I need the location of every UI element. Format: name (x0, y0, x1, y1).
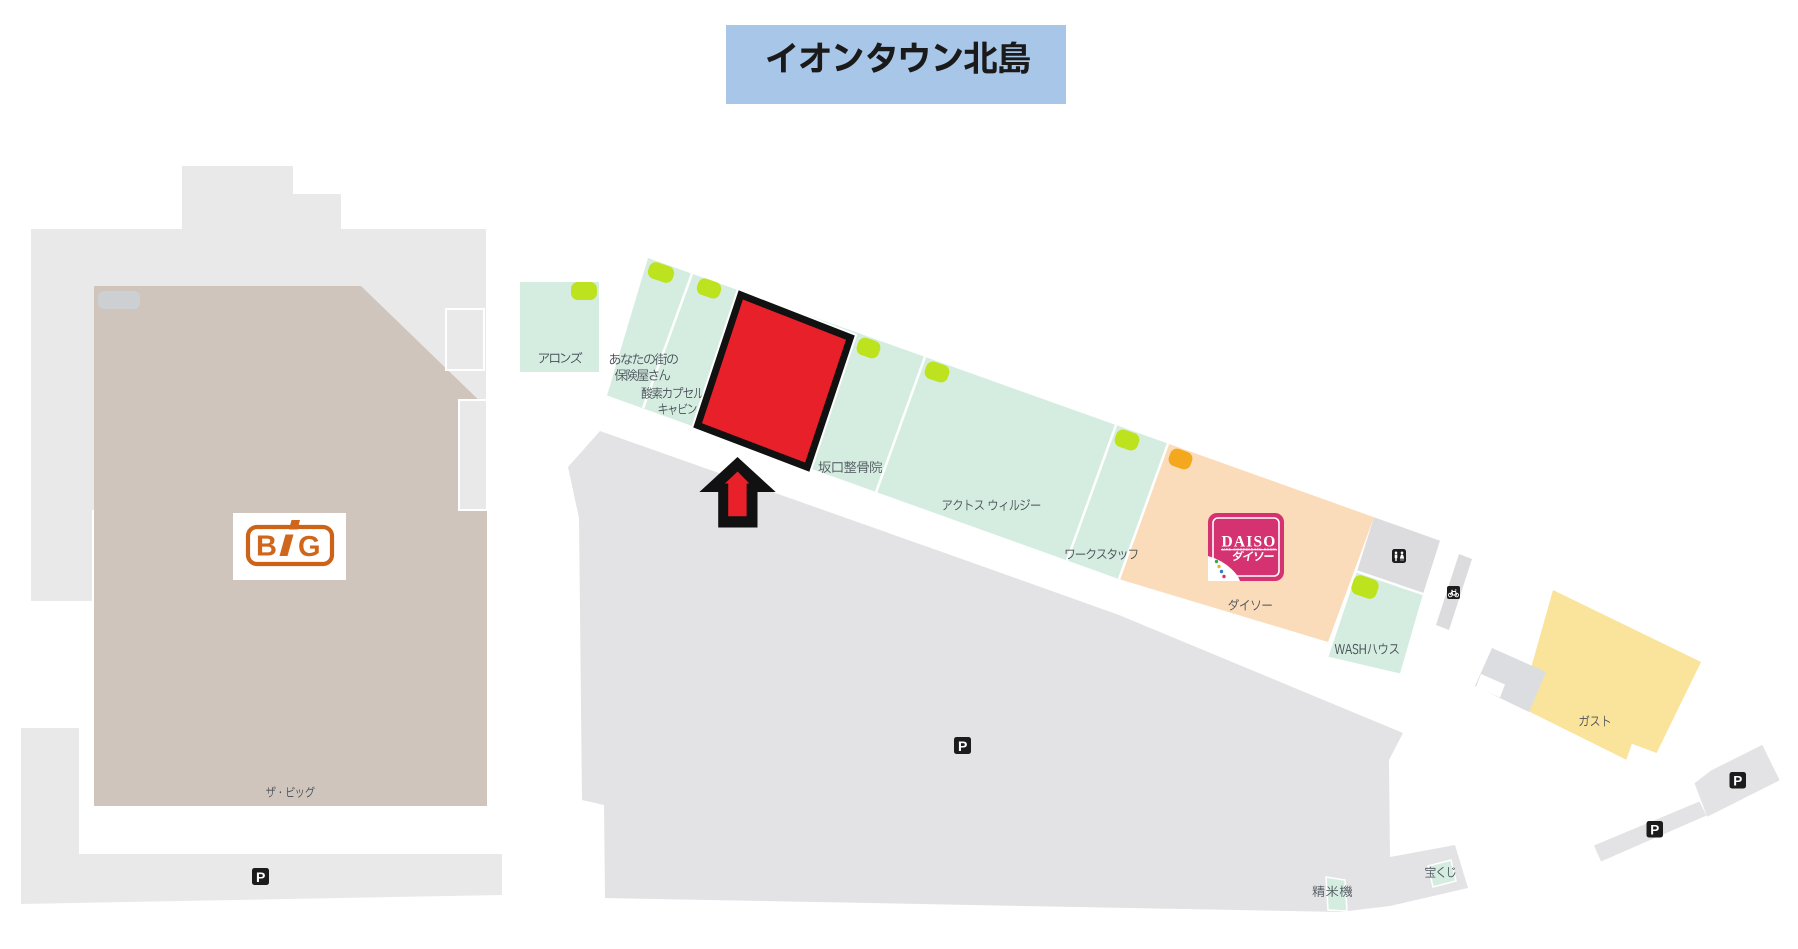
svg-text:P: P (1733, 774, 1742, 789)
svg-text:B: B (256, 531, 277, 563)
svg-text:P: P (958, 738, 967, 754)
svg-text:G: G (298, 531, 321, 563)
svg-text:P: P (256, 869, 265, 885)
svg-text:P: P (1650, 823, 1659, 838)
